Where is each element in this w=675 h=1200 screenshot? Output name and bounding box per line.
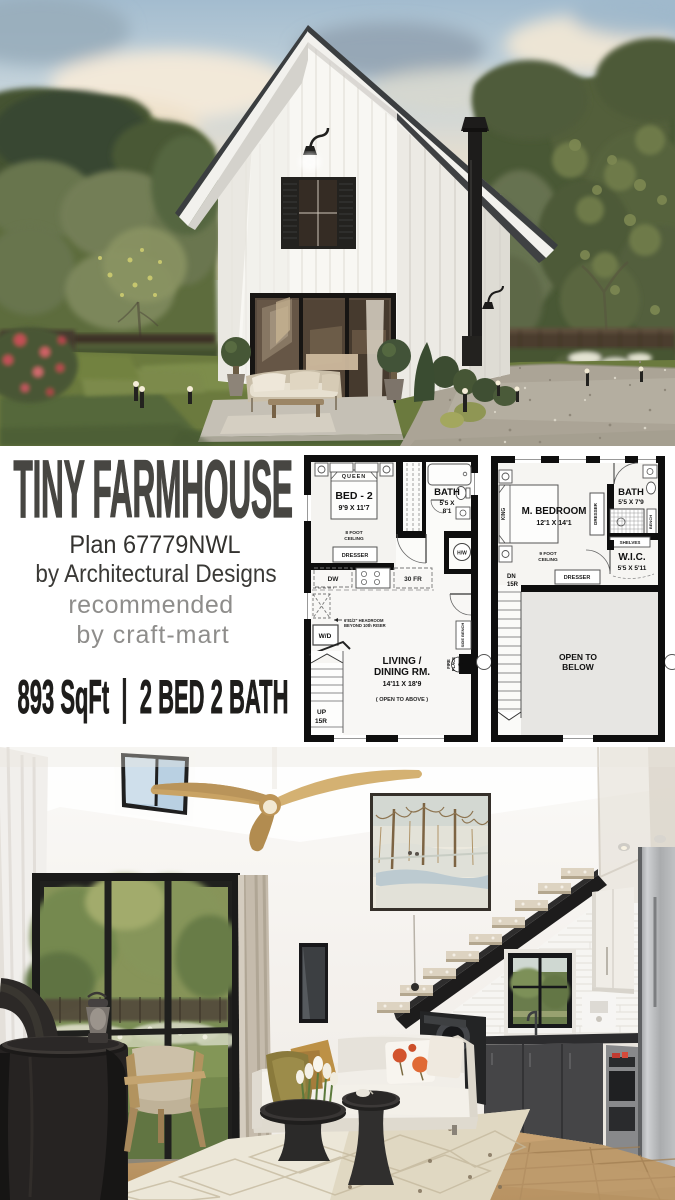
- svg-text:DRESSER: DRESSER: [564, 575, 591, 581]
- svg-text:9 FOOT: 9 FOOT: [539, 551, 556, 557]
- svg-text:DW: DW: [328, 576, 340, 583]
- svg-text:9'9 X 11'7: 9'9 X 11'7: [339, 505, 370, 512]
- svg-text:14'11 X 18'9: 14'11 X 18'9: [383, 681, 422, 688]
- svg-text:15R: 15R: [507, 582, 519, 588]
- svg-text:8'1: 8'1: [443, 508, 452, 515]
- svg-text:BEYOND 10th RISER: BEYOND 10th RISER: [344, 623, 386, 628]
- svg-text:PLACE: PLACE: [451, 657, 456, 671]
- svg-text:DINING RM.: DINING RM.: [374, 667, 430, 678]
- svg-text:BATH: BATH: [434, 487, 460, 498]
- svg-text:DRESSER: DRESSER: [593, 502, 598, 525]
- svg-text:LIVING /: LIVING /: [383, 656, 422, 667]
- svg-text:BENCH: BENCH: [648, 515, 653, 529]
- svg-text:BELOW: BELOW: [562, 662, 595, 672]
- svg-text:12'1 X 14'1: 12'1 X 14'1: [536, 520, 571, 527]
- svg-text:SHELVES: SHELVES: [620, 540, 641, 545]
- svg-text:5'5 X 5'11: 5'5 X 5'11: [618, 565, 647, 572]
- svg-text:5'5 X 7'9: 5'5 X 7'9: [618, 499, 644, 506]
- svg-text:W.I.C.: W.I.C.: [618, 552, 645, 563]
- svg-text:QUEEN: QUEEN: [342, 474, 367, 480]
- svg-text:BATH: BATH: [618, 487, 644, 498]
- svg-text:M. BEDROOM: M. BEDROOM: [522, 506, 587, 517]
- svg-text:H/W: H/W: [457, 551, 467, 557]
- svg-text:UP: UP: [317, 709, 327, 716]
- svg-text:8 FOOT: 8 FOOT: [345, 530, 362, 536]
- svg-text:CEILING: CEILING: [344, 536, 364, 542]
- svg-text:5'5 X: 5'5 X: [440, 500, 456, 507]
- svg-text:( OPEN TO ABOVE ): ( OPEN TO ABOVE ): [376, 697, 428, 703]
- svg-text:CEILING: CEILING: [538, 557, 558, 563]
- svg-text:SIDE BENCH: SIDE BENCH: [460, 623, 465, 648]
- svg-text:15R: 15R: [315, 718, 327, 725]
- svg-text:30 FR: 30 FR: [404, 576, 422, 583]
- svg-text:DN: DN: [507, 574, 516, 580]
- svg-text:BED - 2: BED - 2: [335, 490, 373, 502]
- svg-text:DRESSER: DRESSER: [342, 553, 369, 559]
- svg-text:KING: KING: [501, 508, 507, 521]
- svg-text:OPEN TO: OPEN TO: [559, 652, 597, 662]
- svg-text:W/D: W/D: [319, 633, 332, 640]
